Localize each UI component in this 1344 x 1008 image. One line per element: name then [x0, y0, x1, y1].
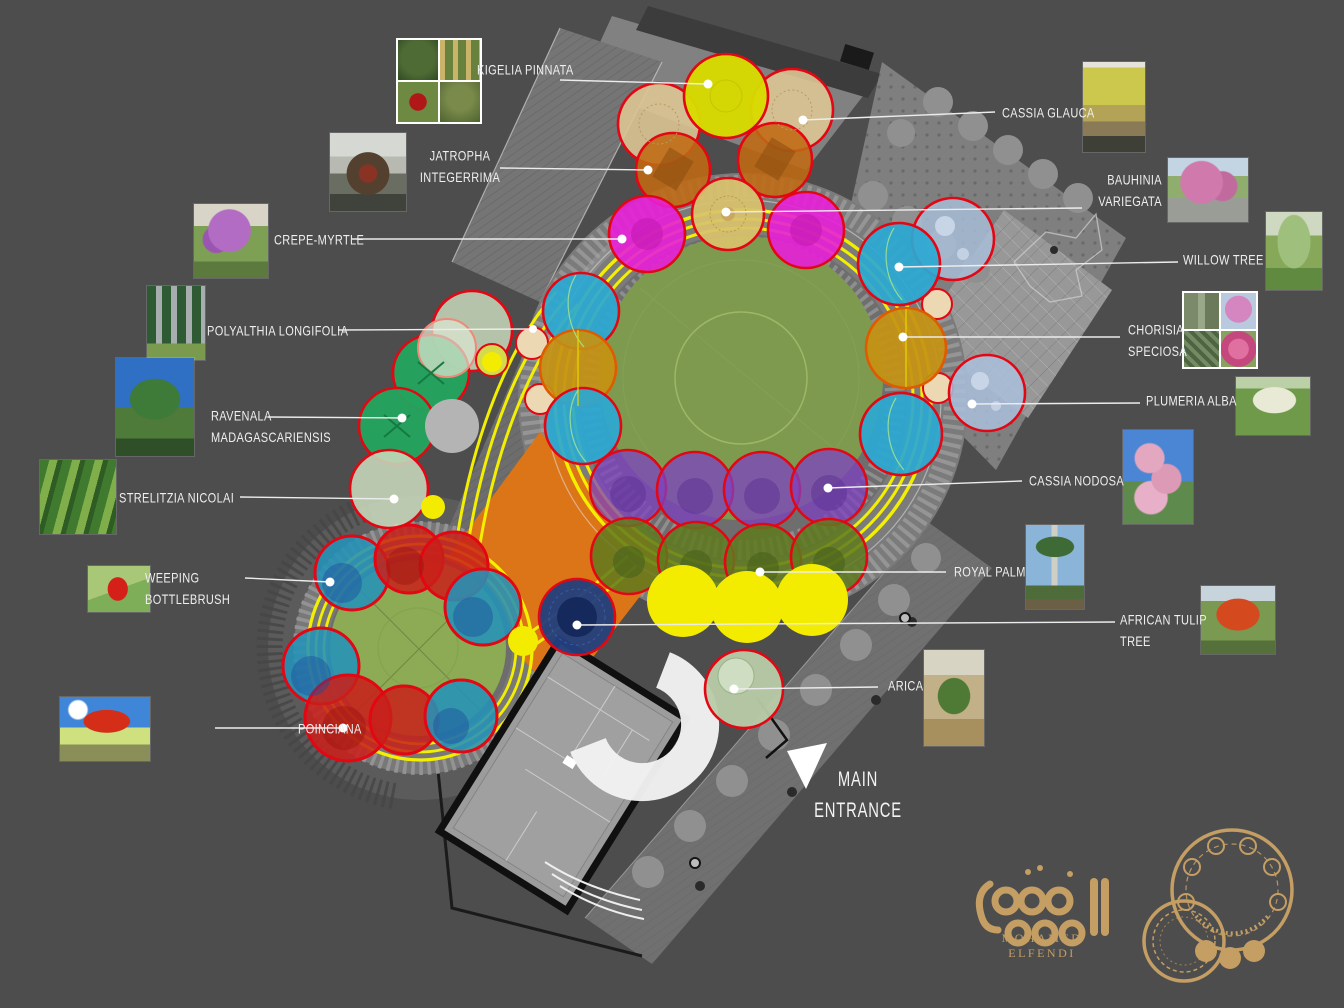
species-name: AFRICAN TULIP — [1120, 610, 1207, 631]
african-tulip-tree-photo — [1201, 586, 1275, 654]
strelitzia-nicolai-photo — [40, 460, 116, 534]
photo-cell — [440, 82, 480, 122]
label-cassia-glauca: CASSIA GLAUCA — [1002, 103, 1095, 124]
label-willow-tree: WILLOW TREE — [1183, 250, 1264, 271]
kigelia-pinnata-photo — [398, 40, 480, 122]
species-name: RAVENALA — [211, 406, 331, 427]
label-arica: ARICA — [888, 676, 923, 697]
willow-canopy — [860, 393, 942, 475]
willow-canopy — [545, 388, 621, 464]
chorisia-speciosa-photo — [1184, 293, 1256, 367]
species-name: ARICA — [888, 678, 923, 694]
main-entrance-label: MAIN ENTRANCE — [810, 763, 906, 825]
photo-cell — [398, 40, 438, 80]
plumeria-alba-photo — [1236, 377, 1310, 435]
photo-cell — [398, 82, 438, 122]
species-name: WILLOW TREE — [1183, 252, 1264, 268]
label-weeping-bottlebrush: WEEPING BOTTLEBRUSH — [145, 568, 230, 611]
plan-sketch-scallops — [1195, 940, 1265, 969]
landscape-masterplan-slide: KIGELIA PINNATA CASSIA GLAUCA JATROPHA I… — [0, 0, 1344, 1008]
label-poinciana: POINCIANA — [298, 719, 362, 740]
label-bauhinia-variegata: BAUHINIA VARIEGATA — [1051, 170, 1162, 213]
photo-cell — [1221, 331, 1256, 367]
label-african-tulip-tree: AFRICAN TULIP TREE — [1120, 610, 1207, 653]
species-name: BAUHINIA — [1051, 170, 1162, 191]
species-name: CHORISIA — [1128, 320, 1187, 341]
photo-cell — [1221, 293, 1256, 329]
species-name: TREE — [1120, 631, 1207, 652]
species-name: POINCIANA — [298, 721, 362, 737]
arica-photo — [924, 650, 984, 746]
species-name: KIGELIA PINNATA — [477, 62, 574, 78]
species-name: ROYAL PALM — [954, 564, 1026, 580]
polyalthia-longifolia-photo — [147, 286, 205, 360]
plumeria-canopy — [949, 355, 1025, 431]
species-name: SPECIOSA — [1128, 341, 1187, 362]
species-name: MADAGASCARIENSIS — [211, 427, 331, 448]
label-polyalthia-longifolia: POLYALTHIA LONGIFOLIA — [207, 321, 348, 342]
species-name: INTEGERRIMA — [411, 167, 510, 188]
designer-name: MOHAMED ELFENDI — [972, 931, 1112, 961]
ravenala-madagascariensis-photo — [116, 358, 194, 456]
jatropha-integerrima-photo — [330, 133, 406, 211]
entrance-text: ENTRANCE — [810, 794, 906, 825]
species-name: JATROPHA — [411, 146, 510, 167]
ringed-dot — [690, 858, 700, 868]
photo-cell — [1184, 331, 1219, 367]
entrance-text: MAIN — [810, 763, 906, 794]
gray-canopy — [425, 399, 479, 453]
label-kigelia-pinnata: KIGELIA PINNATA — [477, 60, 574, 81]
bauhinia-variegata-photo — [1168, 158, 1248, 222]
species-name: VARIEGATA — [1051, 191, 1162, 212]
label-royal-palm: ROYAL PALM — [954, 562, 1026, 583]
species-name: STRELITZIA NICOLAI — [119, 490, 234, 506]
poinciana-photo — [60, 697, 150, 761]
kigelia-canopy — [684, 54, 768, 138]
african-tulip-canopy — [539, 579, 615, 655]
photo-cell — [1184, 293, 1219, 329]
species-name: WEEPING — [145, 568, 230, 589]
species-name: BOTTLEBRUSH — [145, 589, 230, 610]
cassia-nodosa-photo — [1123, 430, 1193, 524]
royal-palm-photo — [1026, 525, 1084, 609]
plan-sketch-icon — [1144, 830, 1292, 981]
photo-cell — [440, 40, 480, 80]
crepe-myrtle-photo — [194, 204, 268, 278]
label-jatropha-integerrima: JATROPHA INTEGERRIMA — [411, 146, 510, 189]
species-name: CASSIA GLAUCA — [1002, 105, 1095, 121]
strelitzia-canopy — [350, 450, 428, 528]
label-cassia-nodosa: CASSIA NODOSA — [1029, 471, 1124, 492]
label-ravenala-madagascariensis: RAVENALA MADAGASCARIENSIS — [211, 406, 331, 449]
willow-tree-photo — [1266, 212, 1322, 290]
yellow-canopy-row — [647, 564, 848, 643]
label-plumeria-alba: PLUMERIA ALBA — [1146, 391, 1237, 412]
label-chorisia-speciosa: CHORISIA SPECIOSA — [1128, 320, 1187, 363]
species-name: CASSIA NODOSA — [1029, 473, 1124, 489]
weeping-bottlebrush-photo — [88, 566, 150, 612]
species-name: POLYALTHIA LONGIFOLIA — [207, 323, 348, 339]
label-crepe-myrtle: CREPE-MYRTLE — [274, 230, 364, 251]
ringed-dot — [900, 613, 910, 623]
label-strelitzia-nicolai: STRELITZIA NICOLAI — [119, 488, 234, 509]
species-name: PLUMERIA ALBA — [1146, 393, 1237, 409]
species-name: CREPE-MYRTLE — [274, 232, 364, 248]
